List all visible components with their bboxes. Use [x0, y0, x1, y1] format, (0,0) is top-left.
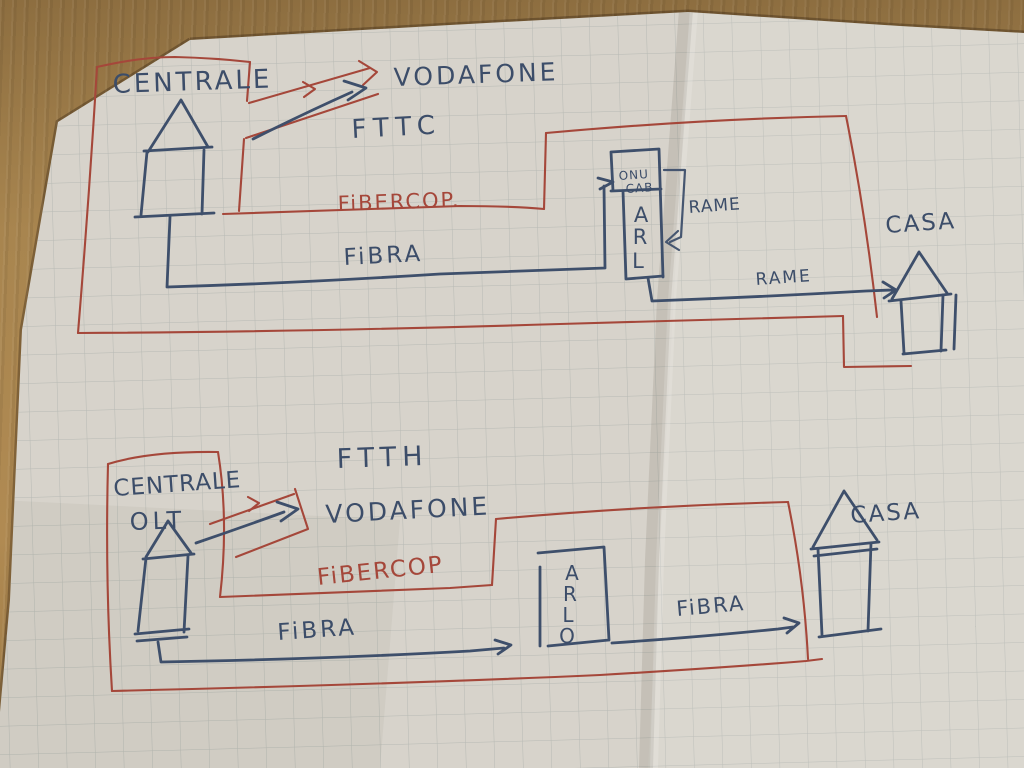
paper-grid — [0, 0, 1024, 768]
ftth-olt-label: OLT — [129, 506, 186, 536]
sketch-canvas: CENTRALE VODAFONE FTTC FiBERCOP. FiBRA O… — [0, 0, 1024, 768]
fttc-vodafone-label: VODAFONE — [393, 57, 559, 92]
fttc-rame-drop-label: RAME — [755, 266, 812, 290]
fttc-centrale-label: CENTRALE — [112, 64, 273, 100]
fttc-arl-letter-3: L — [632, 249, 644, 273]
fttc-casa-label: CASA — [885, 208, 957, 239]
photo-of-hand-drawn-network-sketch: CENTRALE VODAFONE FTTC FiBERCOP. FiBRA O… — [0, 0, 1024, 768]
fttc-onu-label-line2: CAB — [625, 180, 654, 196]
ftth-fibra-feed-label: FiBRA — [277, 615, 358, 646]
ftth-cabinet-letter-4: O — [559, 624, 575, 648]
fttc-arl-letter-1: A — [634, 203, 649, 227]
fttc-fibra-label: FiBRA — [343, 241, 424, 271]
fttc-rame-cabinet-label: RAME — [688, 194, 741, 218]
ftth-casa-label: CASA — [850, 498, 922, 529]
ftth-technology-label: FTTH — [336, 441, 429, 475]
fttc-arl-letter-2: R — [633, 225, 648, 249]
fttc-technology-label: FTTC — [351, 110, 443, 145]
fttc-fibercop-label: FiBERCOP. — [337, 188, 461, 216]
